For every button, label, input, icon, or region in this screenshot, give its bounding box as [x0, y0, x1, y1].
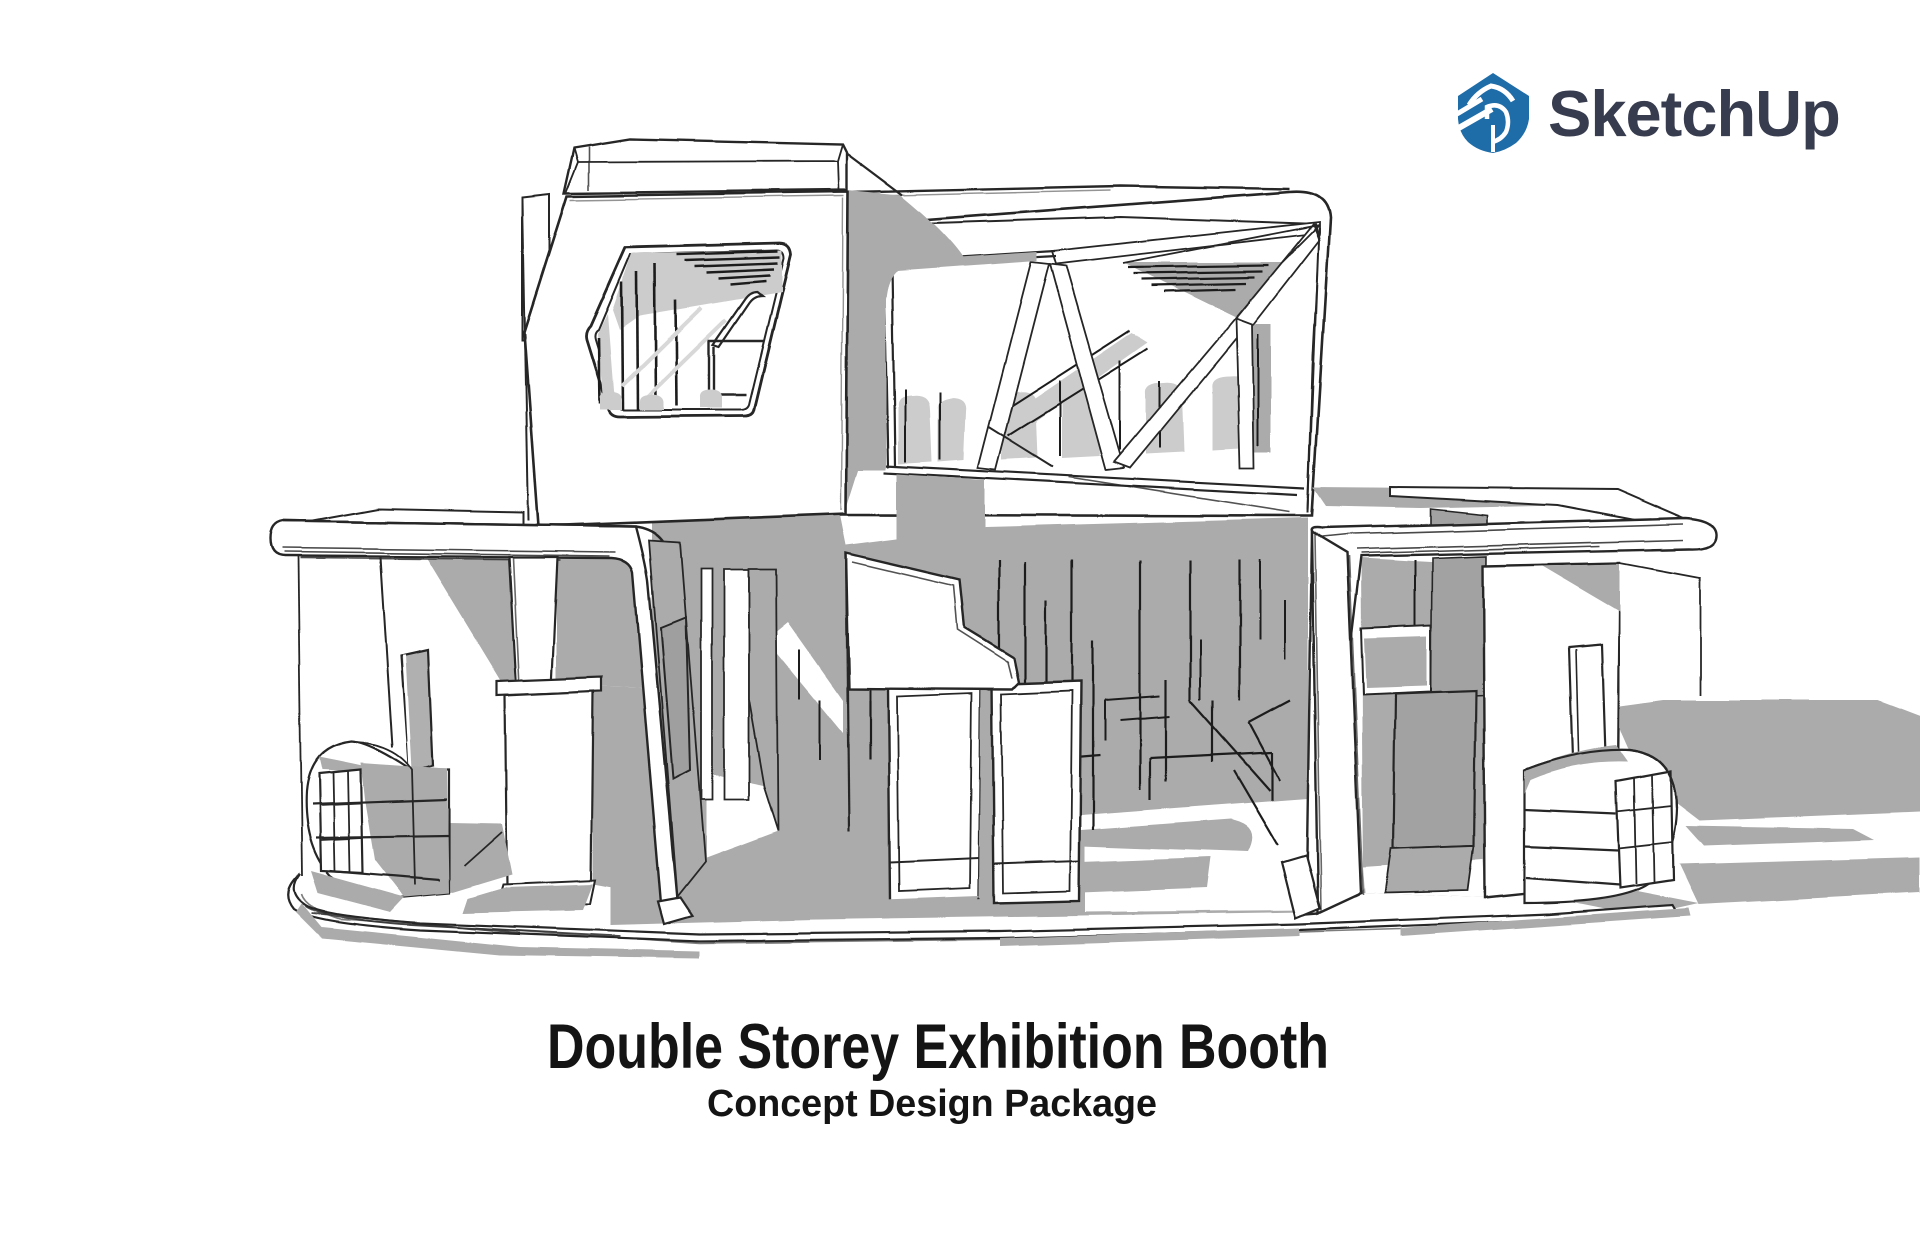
- svg-text:SketchUp: SketchUp: [1548, 77, 1840, 150]
- svg-text:Double Storey Exhibition Booth: Double Storey Exhibition Booth: [547, 1012, 1329, 1082]
- svg-text:Concept Design Package: Concept Design Package: [707, 1083, 1157, 1125]
